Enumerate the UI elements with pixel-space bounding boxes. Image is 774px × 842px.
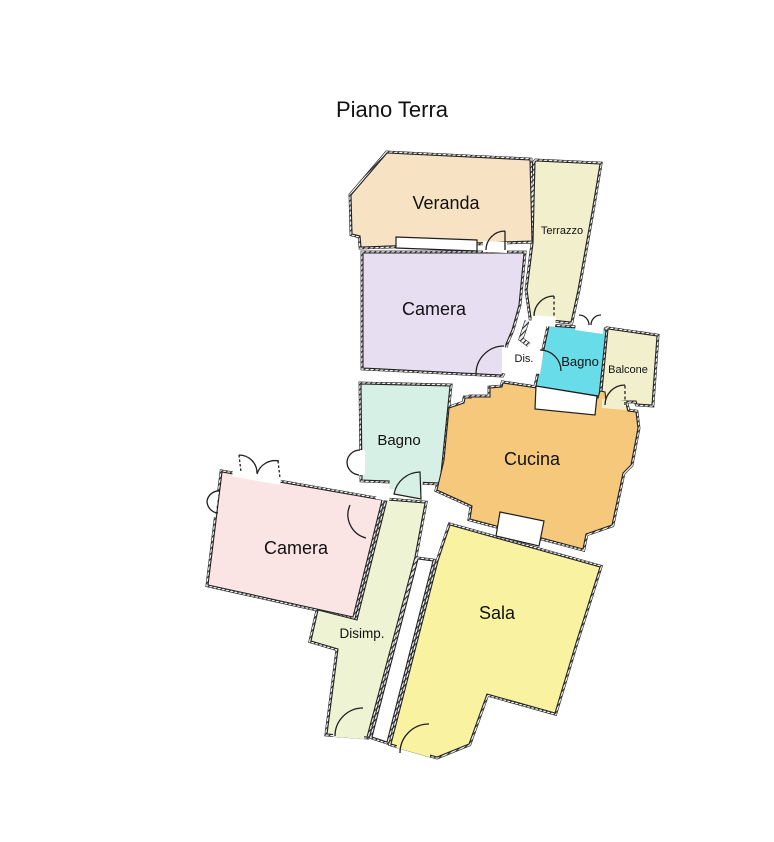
svg-text:Dis.: Dis. [515,353,534,365]
svg-text:Balcone: Balcone [608,364,648,376]
svg-text:Piano Terra: Piano Terra [336,97,449,122]
svg-text:Terrazzo: Terrazzo [541,225,583,237]
svg-text:Bagno: Bagno [561,354,599,369]
svg-text:Bagno: Bagno [377,432,420,449]
svg-text:Cucina: Cucina [504,449,561,469]
svg-text:Sala: Sala [479,603,516,623]
svg-text:Camera: Camera [264,538,329,558]
svg-text:Camera: Camera [402,299,467,319]
svg-text:Disimp.: Disimp. [339,626,384,641]
svg-text:Veranda: Veranda [412,193,480,213]
